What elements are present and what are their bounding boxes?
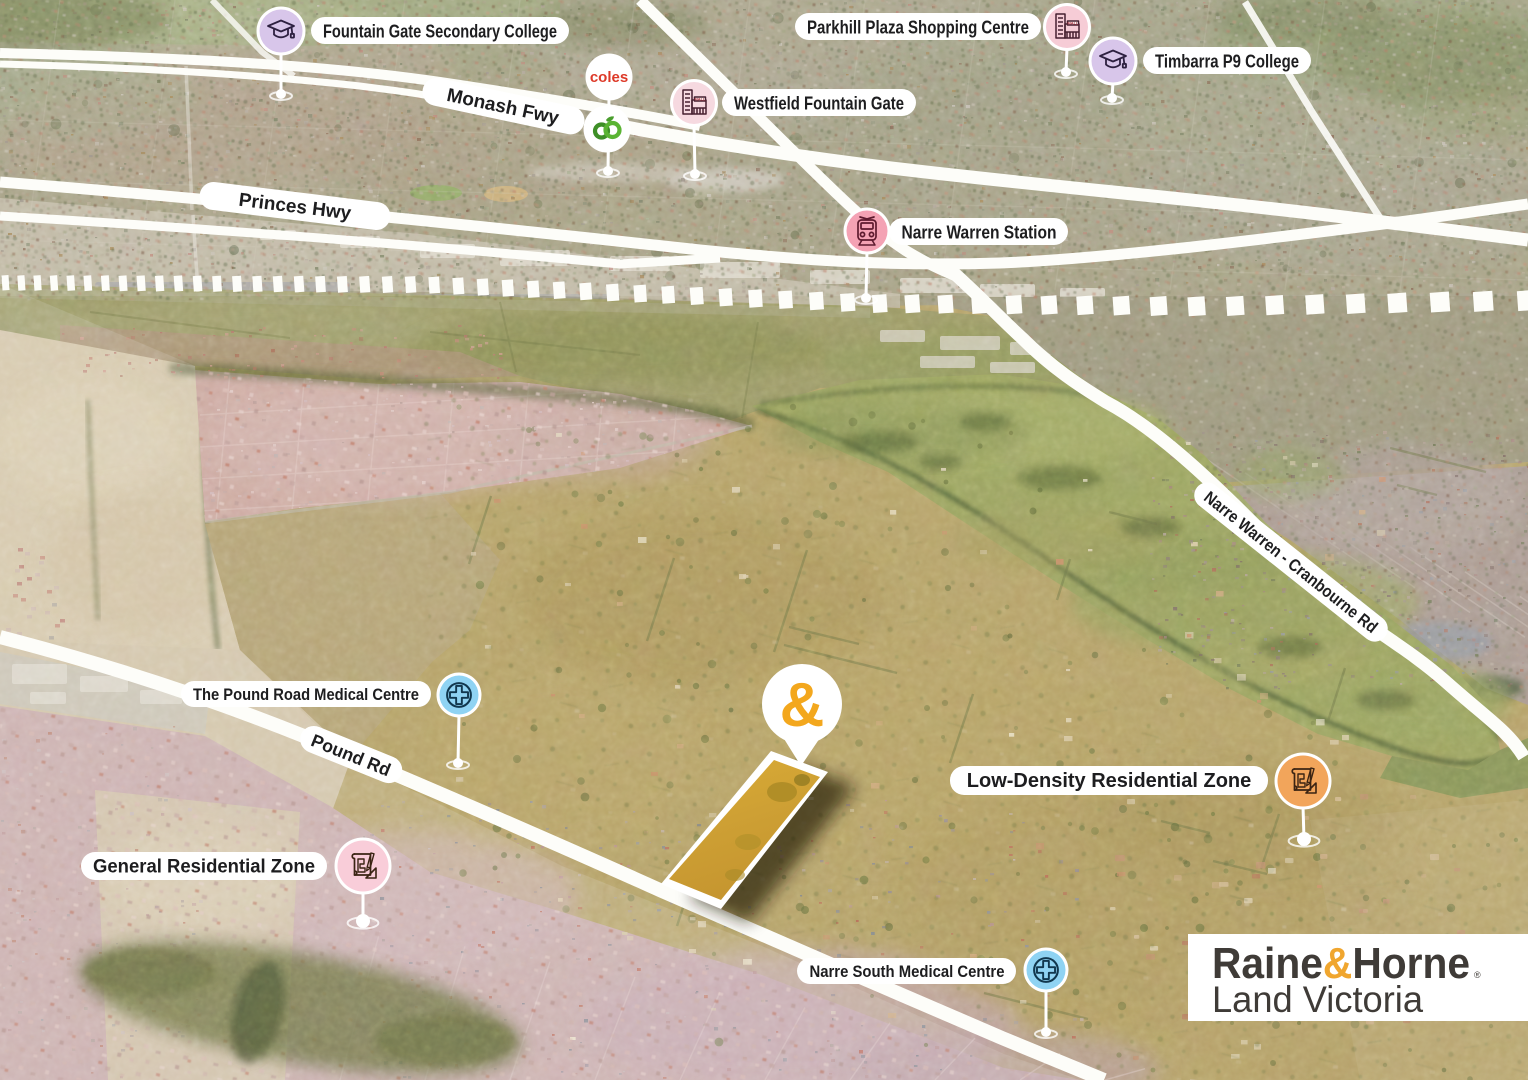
svg-text:Narre Warren Station: Narre Warren Station (902, 222, 1057, 242)
svg-text:Narre South Medical Centre: Narre South Medical Centre (810, 962, 1005, 981)
svg-text:MALL: MALL (694, 96, 706, 101)
svg-text:The Pound Road Medical Centre: The Pound Road Medical Centre (193, 685, 419, 704)
svg-text:®: ® (1474, 970, 1481, 980)
svg-text:coles: coles (590, 69, 628, 86)
svg-text:Fountain Gate Secondary Colleg: Fountain Gate Secondary College (323, 21, 557, 41)
svg-text:General Residential Zone: General Residential Zone (93, 857, 315, 878)
svg-text:Timbarra P9 College: Timbarra P9 College (1155, 51, 1299, 71)
svg-text:Low-Density Residential Zone: Low-Density Residential Zone (967, 770, 1251, 792)
svg-text:Parkhill Plaza Shopping Centre: Parkhill Plaza Shopping Centre (807, 17, 1029, 37)
svg-text:Westfield Fountain Gate: Westfield Fountain Gate (734, 93, 904, 113)
svg-text:&: & (780, 671, 825, 740)
svg-text:Land Victoria: Land Victoria (1212, 979, 1423, 1020)
svg-text:MALL: MALL (1067, 20, 1079, 25)
